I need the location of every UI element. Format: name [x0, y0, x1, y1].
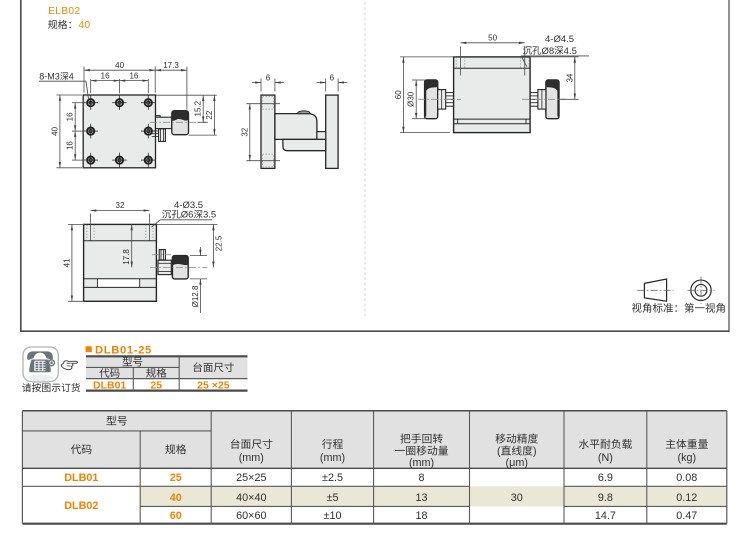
- svg-text:60×60: 60×60: [236, 510, 266, 522]
- svg-text:25 ×25: 25 ×25: [197, 379, 230, 391]
- svg-text:8: 8: [419, 472, 425, 484]
- svg-text:4: 4: [69, 72, 74, 82]
- svg-text:40×40: 40×40: [236, 492, 266, 504]
- svg-text:6: 6: [266, 73, 271, 82]
- svg-text:6.9: 6.9: [598, 472, 613, 484]
- svg-text:16: 16: [66, 141, 75, 150]
- svg-text:Ø12.8: Ø12.8: [191, 285, 200, 307]
- svg-text:Ø8: Ø8: [542, 46, 555, 57]
- svg-text:(kg): (kg): [678, 452, 697, 464]
- svg-text:16: 16: [66, 112, 75, 121]
- svg-text:±2.5: ±2.5: [322, 472, 343, 484]
- svg-text:8-M3: 8-M3: [39, 72, 60, 82]
- svg-text:25×25: 25×25: [236, 472, 266, 484]
- svg-text:Ø30: Ø30: [406, 91, 415, 107]
- svg-text:(mm): (mm): [320, 452, 345, 464]
- svg-text:0.12: 0.12: [676, 492, 697, 504]
- svg-text:ELB02: ELB02: [48, 6, 80, 17]
- svg-text:25: 25: [150, 379, 162, 391]
- svg-text:4.5: 4.5: [564, 46, 577, 57]
- svg-text:(μm): (μm): [506, 457, 528, 469]
- svg-text:16: 16: [129, 72, 138, 81]
- svg-text:18: 18: [416, 510, 428, 522]
- svg-text:60: 60: [170, 510, 182, 522]
- svg-text:9.8: 9.8: [598, 492, 613, 504]
- svg-text:32: 32: [116, 201, 125, 210]
- svg-text:DLB01: DLB01: [64, 472, 98, 484]
- svg-text:): ): [533, 446, 537, 458]
- svg-text:0.47: 0.47: [676, 510, 697, 522]
- svg-text:DLB02: DLB02: [64, 500, 98, 512]
- svg-text:13: 13: [416, 492, 428, 504]
- svg-text:15.2: 15.2: [194, 100, 203, 116]
- svg-text:16: 16: [101, 72, 110, 81]
- svg-text:32: 32: [241, 127, 250, 136]
- svg-text:22.5: 22.5: [215, 235, 224, 251]
- svg-text:(mm): (mm): [409, 457, 434, 469]
- svg-text:DLB01-25: DLB01-25: [95, 344, 152, 356]
- svg-text:4-Ø4.5: 4-Ø4.5: [545, 34, 574, 45]
- svg-text:0.08: 0.08: [676, 472, 697, 484]
- svg-text:14.7: 14.7: [595, 510, 616, 522]
- svg-text:40: 40: [51, 126, 60, 135]
- svg-text:(: (: [497, 446, 501, 458]
- svg-text:34: 34: [565, 73, 574, 82]
- svg-text:3.5: 3.5: [203, 210, 216, 221]
- svg-text:22: 22: [205, 110, 214, 119]
- svg-text:Ø6: Ø6: [181, 210, 194, 221]
- svg-text:17.8: 17.8: [122, 249, 131, 265]
- svg-text:±5: ±5: [327, 492, 339, 504]
- svg-text:(mm): (mm): [239, 452, 264, 464]
- svg-text:60: 60: [394, 90, 403, 99]
- svg-text:25: 25: [170, 472, 182, 484]
- svg-text:41: 41: [63, 258, 72, 267]
- svg-text:DLB01: DLB01: [93, 379, 126, 391]
- svg-text:40: 40: [115, 61, 124, 70]
- svg-text:17.3: 17.3: [163, 61, 179, 70]
- svg-text:50: 50: [488, 33, 497, 42]
- svg-text:6: 6: [330, 73, 335, 82]
- svg-text:±10: ±10: [324, 510, 342, 522]
- svg-text:30: 30: [511, 492, 523, 504]
- svg-text:40: 40: [79, 20, 91, 31]
- svg-text:40: 40: [170, 492, 182, 504]
- svg-text:(N): (N): [598, 452, 613, 464]
